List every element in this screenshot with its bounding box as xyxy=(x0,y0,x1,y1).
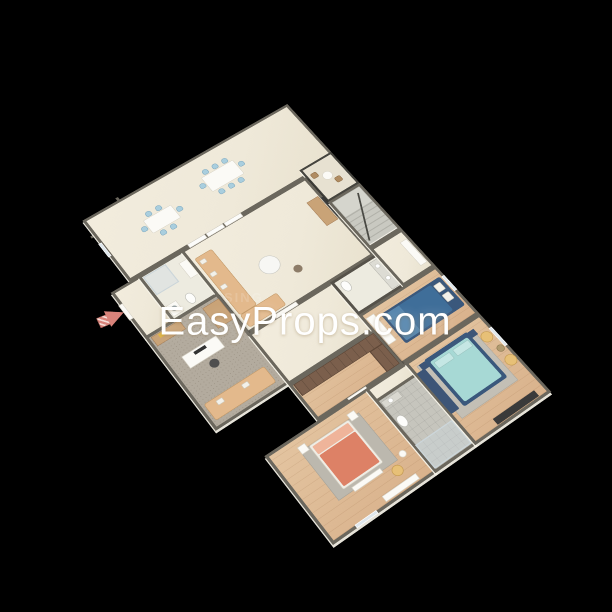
entrance-arrow-icon xyxy=(95,304,129,330)
floorplan-render: SING EasyProps.com xyxy=(0,0,612,612)
watermark: EasyProps.com xyxy=(158,300,451,345)
